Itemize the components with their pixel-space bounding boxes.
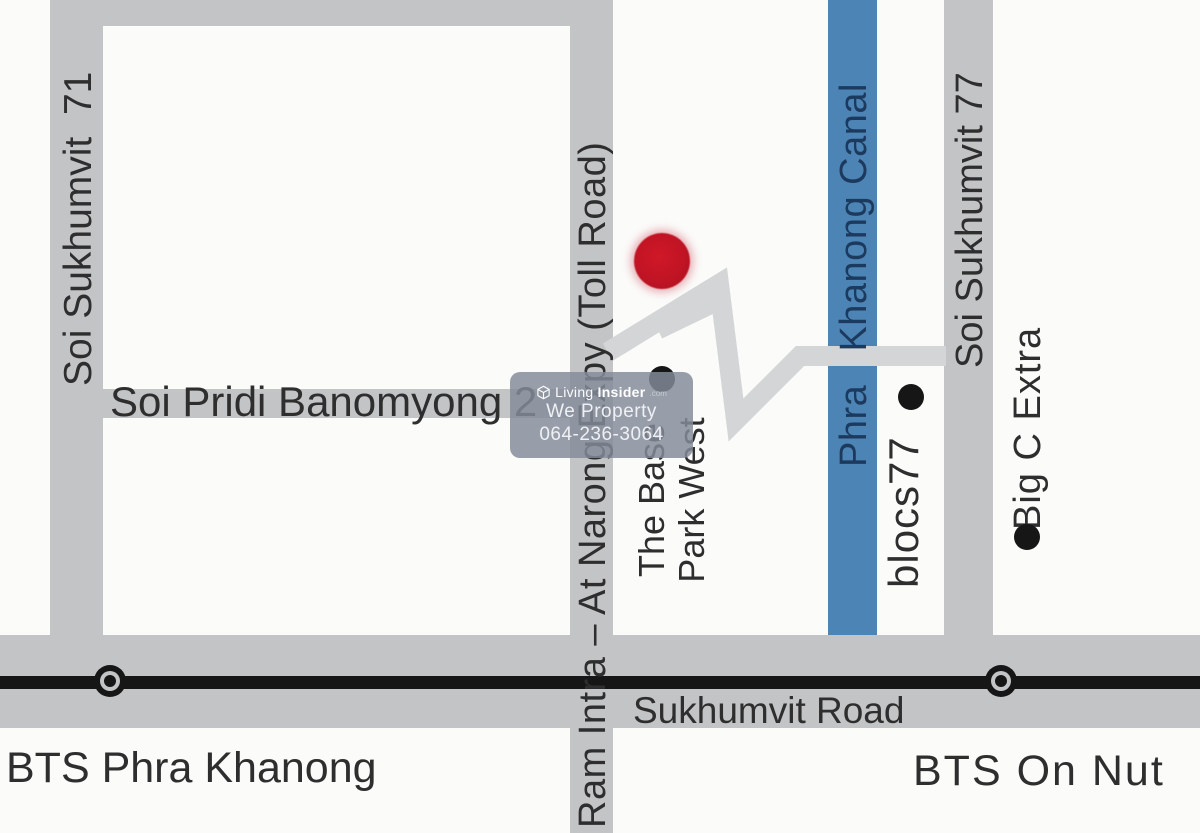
label-big-c-extra: Big C Extra — [1006, 327, 1050, 530]
cube-logo-icon — [536, 385, 551, 400]
road-top-connector — [100, 0, 613, 26]
label-bts-on-nut: BTS On Nut — [913, 747, 1165, 796]
label-toll-expressway: Ram Intra – At Narong Expy (Toll Road) — [572, 142, 614, 828]
watermark-agent-name: We Property — [546, 401, 657, 423]
label-soi-sukhumvit-71: Soi Sukhumvit 71 — [57, 72, 101, 386]
watermark-brand-row: LivingInsider.com — [536, 384, 667, 400]
label-blocs77: blocs77 — [882, 436, 926, 588]
poi-dot-big-c-extra — [1014, 524, 1040, 550]
label-sukhumvit-road: Sukhumvit Road — [633, 690, 904, 732]
property-location-marker — [634, 233, 690, 289]
label-phra-khanong-canal: Phra Khanong Canal — [833, 83, 876, 467]
label-soi-pridi-banomyong: Soi Pridi Banomyong 2 — [110, 378, 537, 426]
brand-living: Living — [555, 384, 593, 400]
zigzag-road-stub — [658, 303, 714, 330]
poi-dot-blocs77 — [898, 384, 924, 410]
label-bts-phra-khanong: BTS Phra Khanong — [6, 744, 377, 793]
label-soi-sukhumvit-77: Soi Sukhumvit 77 — [948, 72, 992, 368]
watermark-card: LivingInsider.com We Property 064-236-30… — [510, 372, 693, 458]
brand-com-suffix: .com — [650, 389, 667, 398]
brand-insider: Insider — [598, 384, 646, 400]
map: Soi Sukhumvit 71 Ram Intra – At Narong E… — [0, 0, 1200, 833]
watermark-phone-number: 064-236-3064 — [539, 424, 663, 446]
